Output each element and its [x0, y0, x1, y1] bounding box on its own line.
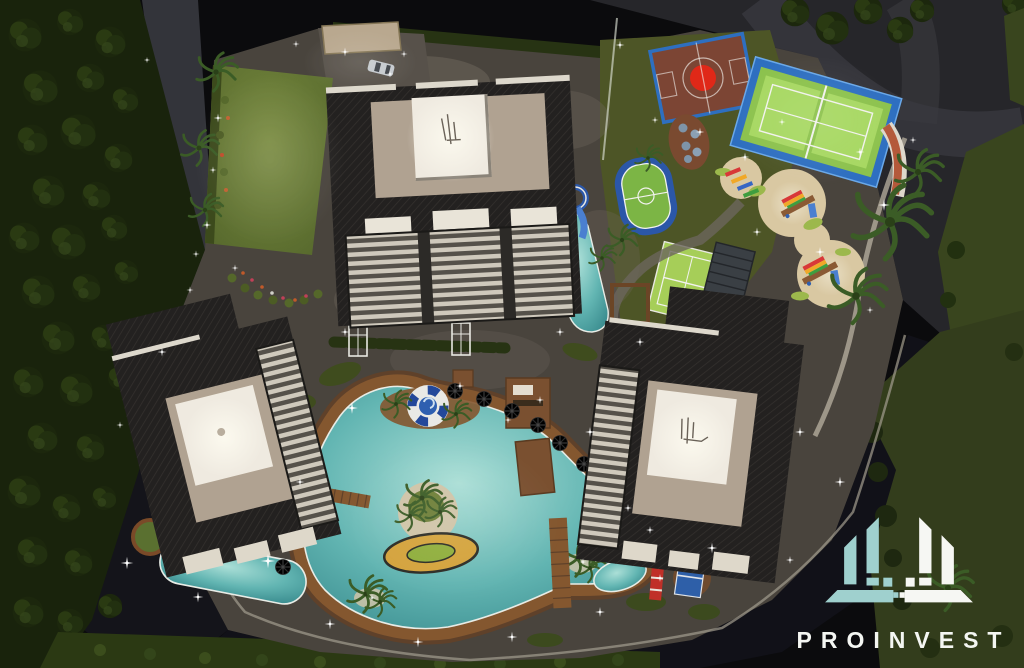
- logo-icon-left-teal: [825, 517, 898, 602]
- logo-icon-right-white: [900, 517, 973, 602]
- brand-wordmark: PROINVEST: [788, 627, 1011, 654]
- central-tower: [326, 75, 582, 328]
- proinvest-logo: PROINVEST: [790, 506, 1008, 654]
- proinvest-buildings-icon: [815, 506, 983, 618]
- balcony-facade: [346, 224, 575, 328]
- east-tower: [576, 279, 809, 583]
- night-aerial-render: PROINVEST: [0, 0, 1024, 668]
